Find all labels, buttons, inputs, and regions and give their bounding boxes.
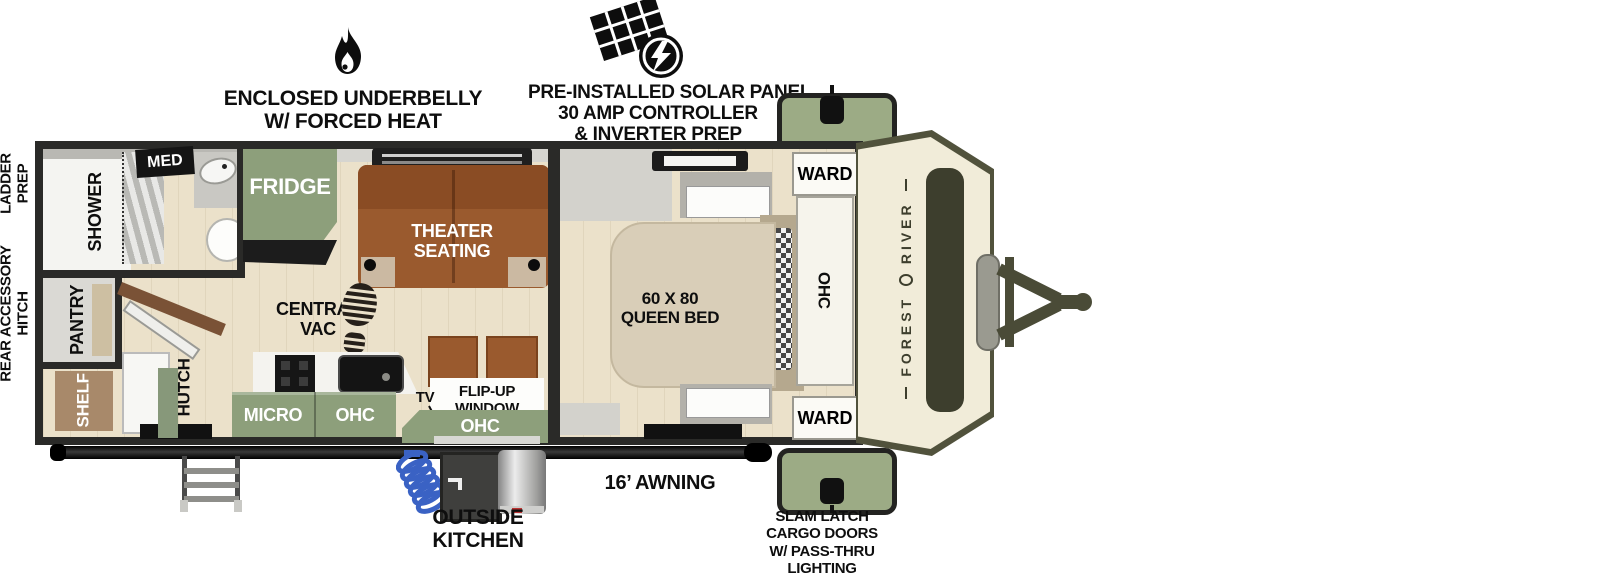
boot-print-icon xyxy=(332,279,385,358)
ohc-window-text: OHC xyxy=(460,416,499,436)
ladder-prep-line1: LADDER xyxy=(0,124,15,244)
med-label: MED xyxy=(147,152,184,172)
cargo-door-top-latch xyxy=(820,96,844,124)
burner xyxy=(281,377,290,386)
cargo-doors-label: SLAM LATCH CARGO DOORS W/ PASS-THRU LIGH… xyxy=(742,508,902,577)
brand-divider xyxy=(905,179,907,191)
shower-label: SHOWER xyxy=(86,157,106,267)
pantry-label: PANTRY xyxy=(68,270,88,370)
solar-label: PRE-INSTALLED SOLAR PANEL 30 AMP CONTROL… xyxy=(528,83,788,146)
burner xyxy=(299,377,308,386)
solar-panel-icon xyxy=(583,0,701,84)
underbelly-line1: ENCLOSED UNDERBELLY xyxy=(223,87,483,110)
bedroom-cabinet-top-door xyxy=(686,186,770,218)
hutch-label: HUTCH xyxy=(176,342,195,432)
cargo-door-bottom-latch xyxy=(820,478,844,504)
front-cap xyxy=(858,137,990,449)
ohc-bedroom-text: OHC xyxy=(814,272,833,309)
kitchen-sink xyxy=(338,355,404,393)
shelf-label: SHELF xyxy=(75,360,94,440)
outside-kitchen-faucet-drop xyxy=(458,478,462,490)
shower-text: SHOWER xyxy=(85,172,105,251)
entry-steps xyxy=(180,456,242,512)
med-cabinet: MED xyxy=(135,146,195,178)
bedroom-roof-vent-pane xyxy=(664,156,736,166)
bedroom-divider-wall xyxy=(548,149,560,437)
solar-line2: 30 AMP CONTROLLER xyxy=(528,104,788,125)
burner xyxy=(281,361,290,370)
front-cap-window xyxy=(926,168,964,412)
ward-top-text: WARD xyxy=(798,164,853,185)
bedroom-cabinet-bottom-door xyxy=(686,388,770,418)
fridge-text: FRIDGE xyxy=(249,174,330,199)
tongue-hitch xyxy=(975,245,1095,360)
bed-line2: QUEEN BED xyxy=(600,309,740,328)
cargo-line1: SLAM LATCH xyxy=(742,508,902,525)
micro-text: MICRO xyxy=(244,405,303,425)
bed-line1: 60 X 80 xyxy=(600,290,740,309)
ohc-bedroom-label: OHC xyxy=(814,260,833,320)
pantry-text: PANTRY xyxy=(67,285,87,355)
flame-icon xyxy=(328,26,368,84)
floorplan-scene: ENCLOSED UNDERBELLY W/ FORCED HEAT PRE-I… xyxy=(0,0,1600,581)
theater-label: THEATER SEATING xyxy=(382,222,522,262)
bedroom-lower-wall xyxy=(560,403,620,435)
awning-text: 16’ AWNING xyxy=(605,472,716,494)
underbelly-label: ENCLOSED UNDERBELLY W/ FORCED HEAT xyxy=(223,87,483,133)
micro-label: MICRO xyxy=(232,406,314,426)
brand-divider xyxy=(905,387,907,399)
bedroom-mat xyxy=(644,424,742,439)
theater-line1: THEATER xyxy=(382,222,522,242)
brand-word-forest: FOREST xyxy=(898,296,914,377)
ohc-window-label: OHC xyxy=(440,417,520,437)
living-window-slat2 xyxy=(382,161,522,164)
sink-drain xyxy=(382,373,390,381)
flipup-line1: FLIP-UP xyxy=(432,384,542,401)
sink-faucet xyxy=(222,164,227,169)
solar-line1: PRE-INSTALLED SOLAR PANEL xyxy=(528,83,788,104)
flipup-wall-opening xyxy=(434,436,540,444)
outside-kitchen-line1: OUTSIDE xyxy=(408,506,548,529)
outside-kitchen-label: OUTSIDE KITCHEN xyxy=(408,506,548,552)
ladder-prep-label: LADDER PREP xyxy=(0,124,32,244)
cargo-line4: LIGHTING xyxy=(742,560,902,577)
cargo-door-top-stem xyxy=(830,85,834,94)
underbelly-line2: W/ FORCED HEAT xyxy=(223,110,483,133)
outside-kitchen-tank xyxy=(498,450,546,514)
queen-bed-label: 60 X 80 QUEEN BED xyxy=(600,290,740,327)
ladder-prep-line2: PREP xyxy=(15,124,32,244)
wardrobe-top: WARD xyxy=(792,152,858,196)
fridge-label: FRIDGE xyxy=(245,175,335,199)
rear-hitch-line2: HITCH xyxy=(15,229,32,399)
cargo-line3: W/ PASS-THRU xyxy=(742,543,902,560)
step-foot xyxy=(234,500,242,512)
awning-endcap-right xyxy=(744,443,772,462)
sofa-cupholder-right xyxy=(528,259,540,271)
ward-bottom-text: WARD xyxy=(798,408,853,429)
fridge-base xyxy=(243,240,337,265)
awning-endcap-left xyxy=(50,444,66,461)
step-tread xyxy=(184,496,239,502)
theater-line2: SEATING xyxy=(382,242,522,262)
stove xyxy=(275,355,315,393)
step-tread xyxy=(184,482,239,488)
burner xyxy=(299,361,308,370)
outside-kitchen-line2: KITCHEN xyxy=(408,529,548,552)
rear-hitch-line1: REAR ACCESSORY xyxy=(0,229,15,399)
sofa-cupholder-left xyxy=(364,259,376,271)
hutch-side-cabinet xyxy=(158,368,178,438)
brand-word-river: RIVER xyxy=(898,201,914,264)
shelf-text: SHELF xyxy=(74,373,93,427)
ohc-kitchen-label: OHC xyxy=(316,406,394,426)
awning-label: 16’ AWNING xyxy=(590,472,730,494)
ohc-kitchen-text: OHC xyxy=(335,405,374,425)
cargo-line2: CARGO DOORS xyxy=(742,525,902,542)
step-foot xyxy=(180,500,188,512)
brand-emblem-icon xyxy=(899,274,913,286)
living-window-slat1 xyxy=(382,154,522,157)
step-tread xyxy=(184,468,239,474)
pantry-shelf-edge xyxy=(92,284,112,356)
brand-logo: FOREST RIVER xyxy=(895,179,917,399)
wardrobe-bottom: WARD xyxy=(792,396,858,440)
rear-hitch-label: REAR ACCESSORY HITCH xyxy=(0,229,32,399)
